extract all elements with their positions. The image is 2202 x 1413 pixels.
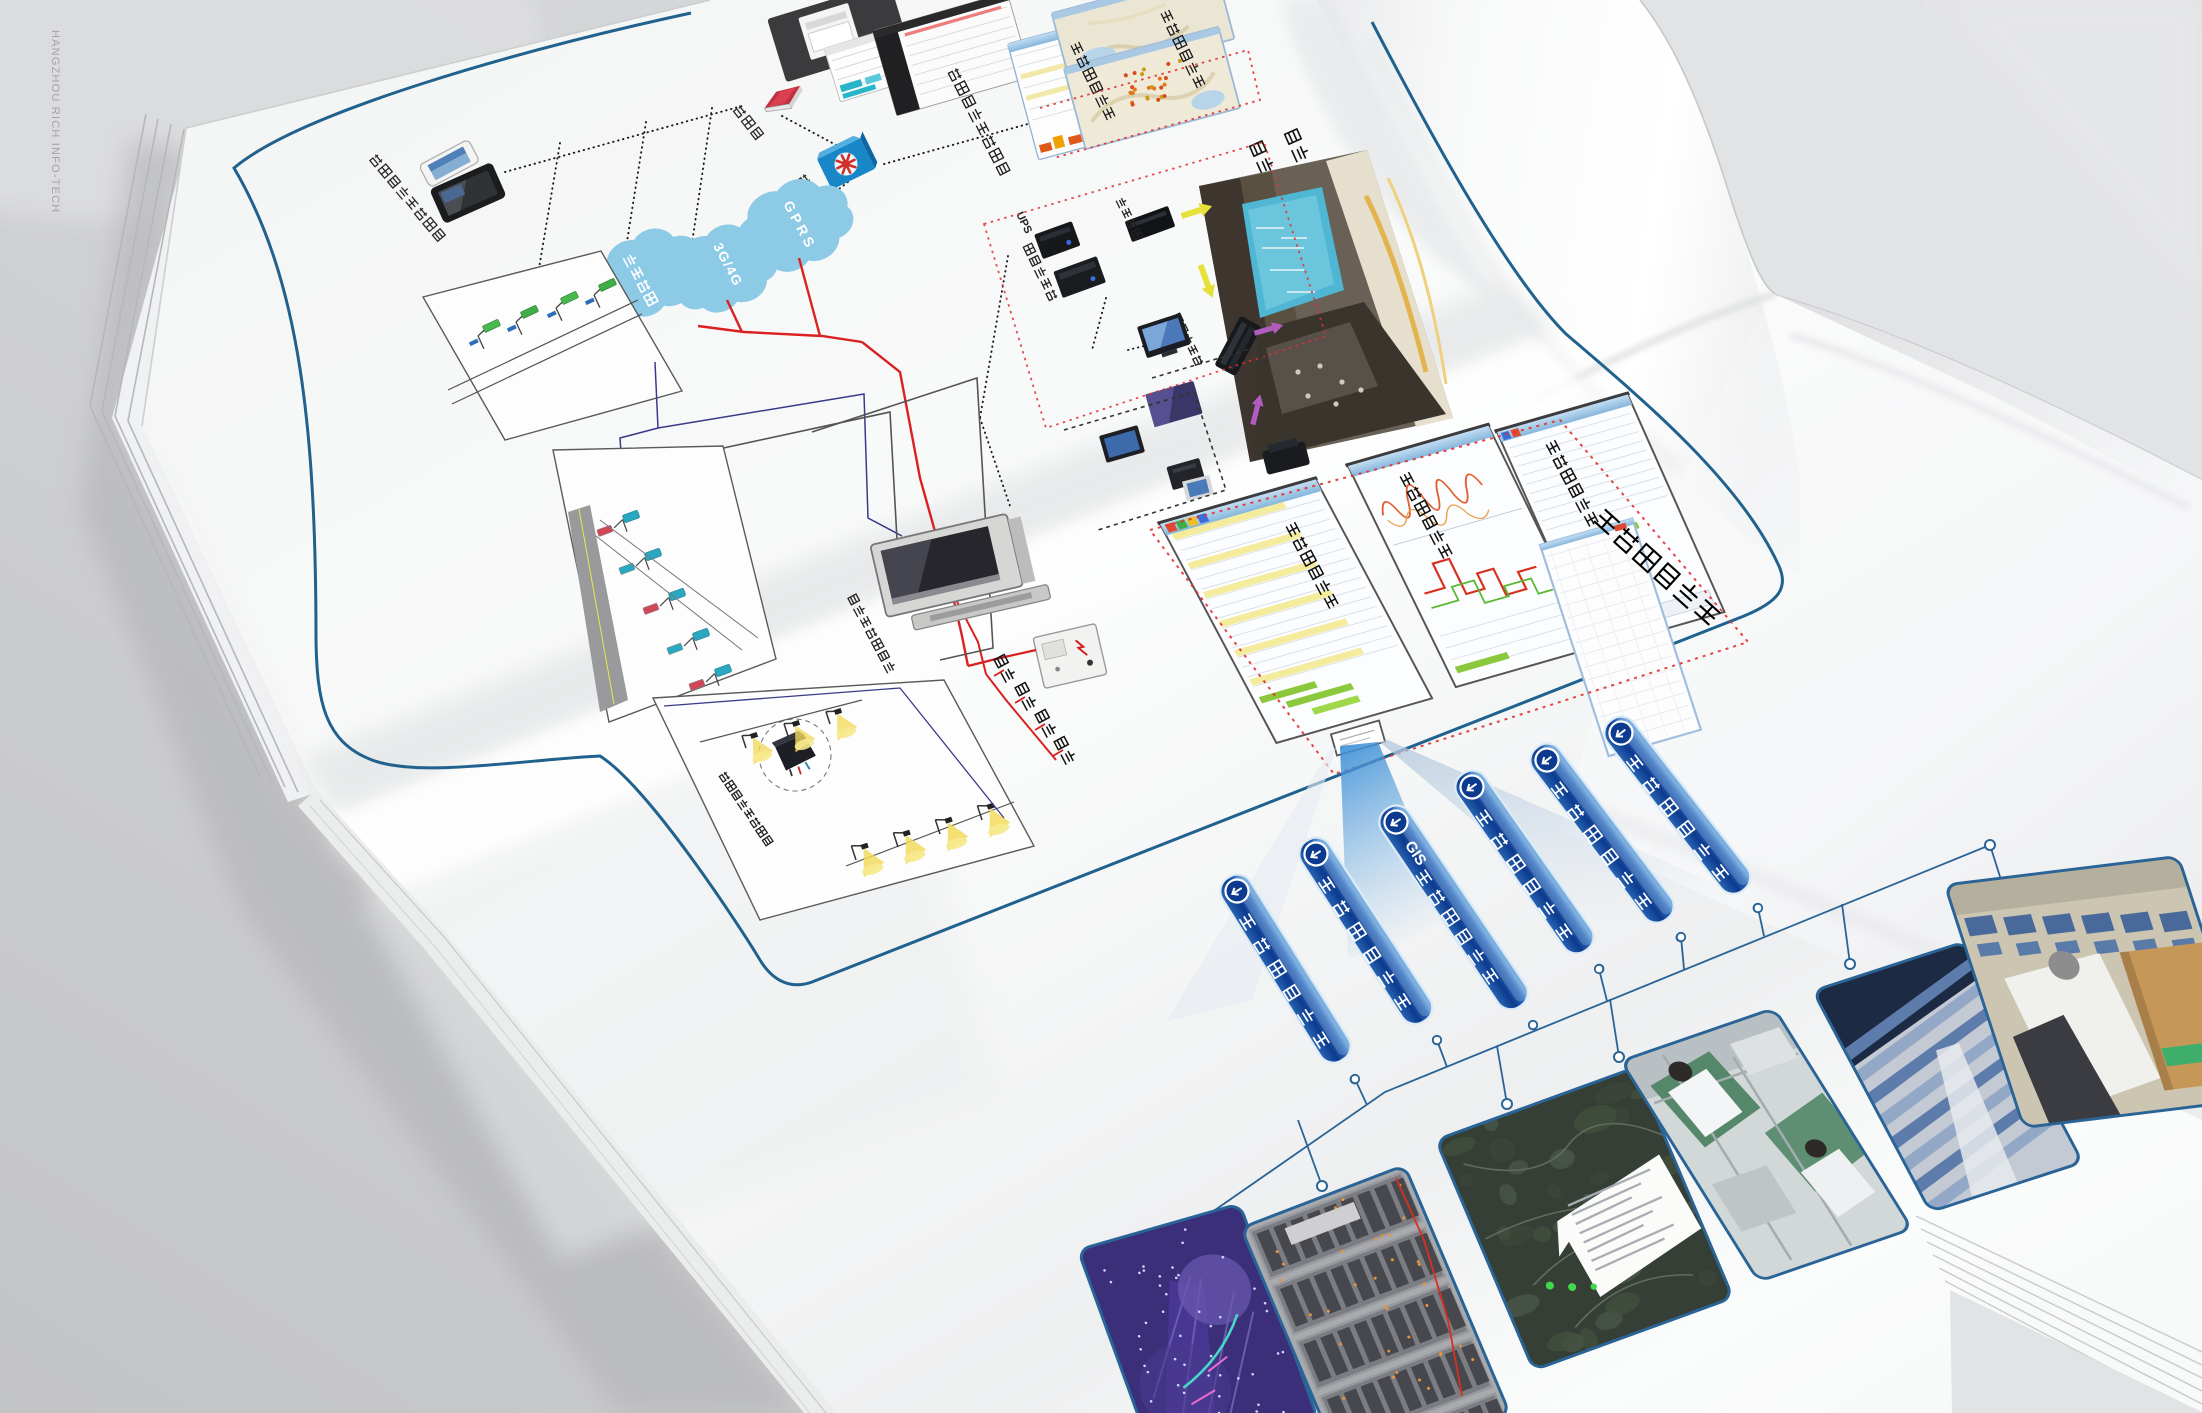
- svg-text:HANGZHOU RICH INFO-TECH: HANGZHOU RICH INFO-TECH: [49, 30, 61, 213]
